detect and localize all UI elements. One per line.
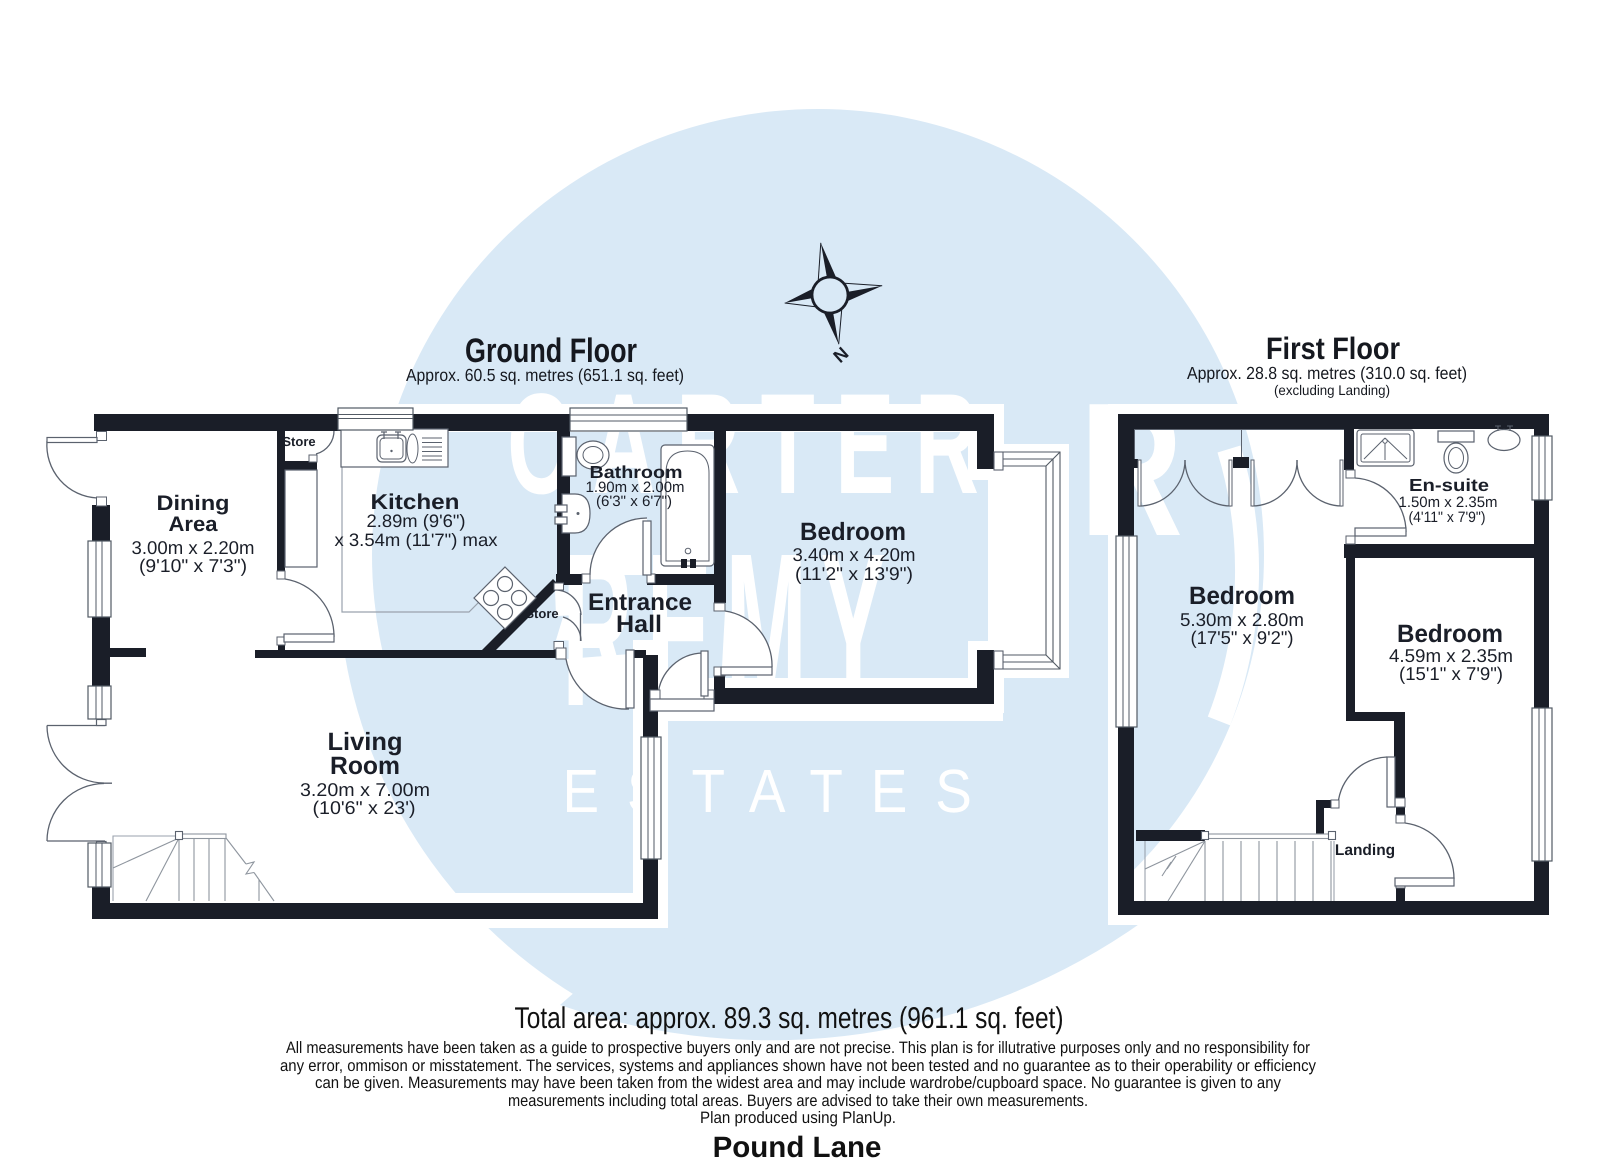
svg-text:Bedroom: Bedroom — [1397, 620, 1503, 648]
svg-text:(11'2" x 13'9"): (11'2" x 13'9") — [795, 563, 913, 584]
svg-text:Pound Lane: Pound Lane — [713, 1131, 882, 1164]
svg-text:(10'6" x 23'): (10'6" x 23') — [313, 797, 416, 818]
svg-text:Room: Room — [330, 752, 400, 780]
svg-text:any error, ommison or misstate: any error, ommison or misstatement. The … — [280, 1057, 1317, 1075]
svg-text:(9'10" x 7'3"): (9'10" x 7'3") — [139, 555, 247, 576]
svg-text:measurements including total a: measurements including total areas. Buye… — [508, 1092, 1088, 1110]
svg-text:Plan produced using PlanUp.: Plan produced using PlanUp. — [700, 1109, 896, 1127]
svg-text:Area: Area — [169, 513, 218, 536]
svg-text:ESTATES: ESTATES — [563, 757, 1000, 825]
svg-text:Landing: Landing — [1335, 842, 1395, 859]
svg-text:All measurements have been tak: All measurements have been taken as a gu… — [286, 1039, 1310, 1057]
svg-text:Approx. 60.5 sq. metres (651.1: Approx. 60.5 sq. metres (651.1 sq. feet) — [406, 365, 684, 385]
svg-text:can be given. Measurements may: can be given. Measurements may have been… — [315, 1074, 1282, 1092]
svg-text:(4'11" x 7'9"): (4'11" x 7'9") — [1409, 509, 1486, 526]
svg-text:Total area: approx. 89.3 sq. m: Total area: approx. 89.3 sq. metres (961… — [515, 1002, 1064, 1035]
svg-text:(15'1" x 7'9"): (15'1" x 7'9") — [1399, 663, 1503, 684]
svg-text:3.40m x 4.20m: 3.40m x 4.20m — [793, 544, 916, 565]
svg-text:Bedroom: Bedroom — [1189, 582, 1295, 610]
svg-text:(17'5" x 9'2"): (17'5" x 9'2") — [1191, 627, 1294, 648]
svg-text:En-suite: En-suite — [1409, 475, 1489, 495]
svg-text:First Floor: First Floor — [1266, 331, 1400, 366]
svg-text:(6'3" x 6'7"): (6'3" x 6'7") — [596, 493, 672, 510]
svg-text:Bedroom: Bedroom — [800, 518, 906, 546]
svg-text:Hall: Hall — [616, 611, 662, 638]
svg-text:Approx. 28.8 sq. metres (310.0: Approx. 28.8 sq. metres (310.0 sq. feet) — [1187, 363, 1467, 383]
svg-text:x 3.54m (11'7") max: x 3.54m (11'7") max — [335, 530, 498, 550]
svg-text:Dining: Dining — [157, 492, 230, 515]
svg-text:Store: Store — [525, 606, 558, 621]
svg-text:2.89m (9'6"): 2.89m (9'6") — [367, 511, 466, 531]
svg-text:Store: Store — [282, 434, 315, 449]
svg-text:(excluding Landing): (excluding Landing) — [1274, 382, 1390, 398]
